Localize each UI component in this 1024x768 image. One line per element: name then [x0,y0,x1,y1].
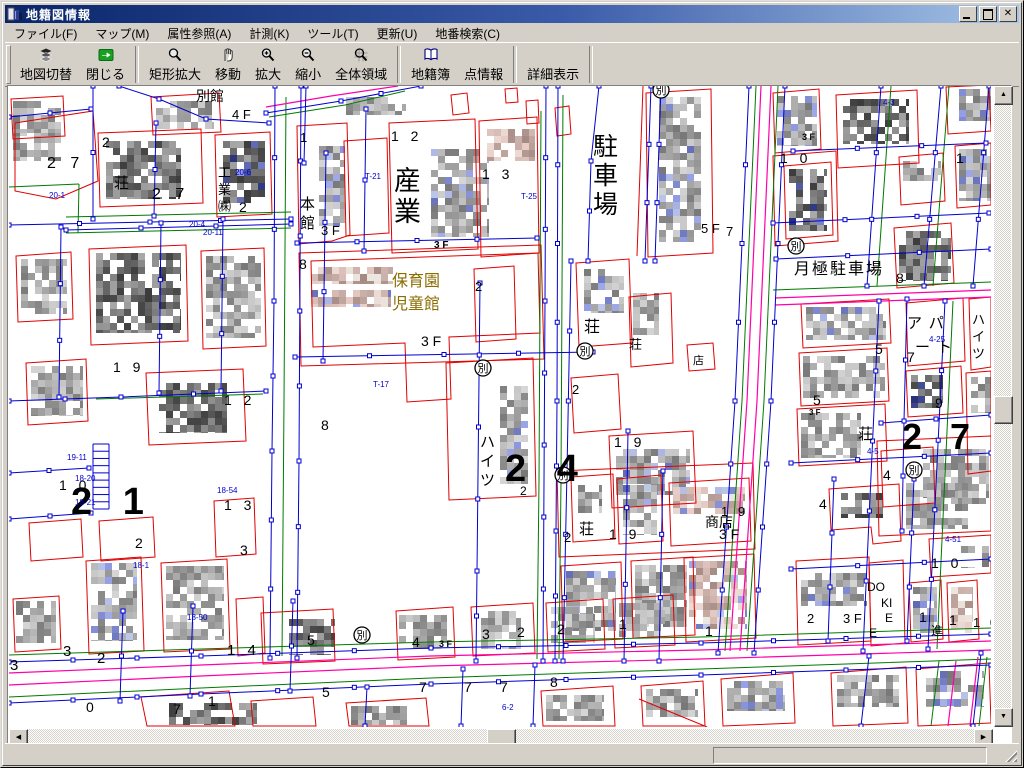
vertex-marker [879,421,883,425]
vertex-marker [752,651,756,655]
vertex-marker [907,585,911,589]
map-label: 荘 [579,521,594,538]
map-label: 別館 [196,88,224,104]
vertex-marker [989,413,991,417]
map-label: 3 F [802,132,816,142]
tool-button-0-1[interactable]: 閉じる [79,43,132,86]
tool-button-label: 地籍簿 [411,64,450,83]
magnifier-minus-icon [300,46,316,64]
tool-button-label: 移動 [215,64,241,83]
vertex-marker [826,639,830,643]
vertex-marker [915,214,919,218]
map-label: T-21 [365,172,382,181]
vertex-marker [776,242,780,246]
vertex-marker [364,107,368,111]
vertex-marker [475,569,479,573]
map-label: 1 0 [931,555,962,571]
map-label: 2 7 [152,186,189,203]
tool-button-label: 拡大 [255,64,281,83]
vertex-marker [220,274,224,278]
app-icon [7,6,23,22]
map-label: 5 [307,632,315,648]
vertex-marker [59,225,63,229]
vertex-marker [747,86,751,88]
vertex-marker [720,588,724,592]
vertex-marker [769,399,773,403]
map-label: 2 4 [505,448,588,490]
map-label: 6-2 [502,703,514,712]
vertex-marker [153,168,157,172]
vertex-marker [324,151,328,155]
resize-grip[interactable] [1004,749,1017,762]
map-label: 荘 [584,318,600,336]
map-label: 18-20 [75,474,96,483]
tool-button-label: 地図切替 [20,64,72,83]
map-label: 7 [500,679,508,695]
vertex-marker [971,284,975,288]
map-label: 1 2 [224,392,255,408]
map-label: 7 [464,679,472,695]
vertex-marker [9,517,11,521]
circled-betsu-char: 別 [580,345,591,358]
vertex-marker [900,529,904,533]
vertical-scrollbar[interactable]: ▲ ▼ [994,86,1011,727]
map-label: 1 [619,616,627,632]
vertex-marker [729,462,733,466]
vertex-marker [121,609,125,613]
tool-button-label: 点情報 [464,64,503,83]
vertex-marker [632,675,636,679]
maximize-icon [983,9,993,20]
tool-button-3-0[interactable]: 詳細表示 [520,43,586,86]
vertex-marker [533,663,537,667]
vertex-marker [622,659,626,663]
vertex-marker [566,399,570,403]
map-label: 8 [321,417,329,433]
vertex-marker [158,334,162,338]
map-label: 駐車場 [593,133,618,219]
vertex-marker [901,474,905,478]
vertex-marker [541,587,545,591]
vertex-marker [653,259,657,263]
vertex-marker [632,642,636,646]
map-label: 2 [520,484,527,498]
cadastral-line [304,86,306,163]
toolbar-grip [6,45,11,84]
vertex-marker [191,604,195,608]
vertex-marker [874,369,878,373]
map-label: ハイツ [972,312,985,361]
vertex-marker [556,163,560,167]
map-label: 5 F [701,221,720,236]
map-label: 1 4 [227,642,260,659]
vertex-marker [148,220,152,224]
vertex-marker [442,353,446,357]
vertex-marker [272,299,276,303]
vertex-marker [879,86,883,88]
map-label: 8 [299,256,307,272]
vertex-marker [844,668,848,672]
road-center-line [740,86,771,651]
map-label: 8 [550,674,558,690]
vertex-marker [220,332,224,336]
minimize-button[interactable] [959,6,977,22]
close-icon: ✕ [1004,8,1012,19]
map-label: 1 [956,150,964,166]
vertex-marker [989,451,991,455]
cadastral-line [461,669,463,726]
vertex-marker [461,667,465,671]
vertex-marker [859,724,863,727]
vertex-marker [297,384,301,388]
vertex-marker [555,399,559,403]
vertex-marker [774,257,778,261]
vertex-marker [564,644,568,648]
map-label: 5 [322,684,330,700]
map-label: 工業㈱ [218,165,231,214]
vertex-marker [655,201,659,205]
vertex-marker [877,299,881,303]
vertex-marker [843,218,847,222]
vertex-marker [475,237,479,241]
map-label: KI [881,596,892,610]
vertex-marker [586,259,590,263]
vertex-marker [846,254,850,258]
vertex-marker [929,577,933,581]
road-center-line [775,290,991,298]
map-label: 3 [482,626,490,642]
vertex-marker [543,371,547,375]
vertex-marker [71,698,75,702]
tool-button-1-2[interactable]: 拡大 [248,43,288,86]
vertex-marker [544,156,548,160]
vertex-marker [844,637,848,641]
map-label: 18-21 [75,498,96,507]
map-canvas[interactable]: 別別別別別別別別館4 F2 72荘2 7工業㈱220-620-120-420-1… [9,86,991,727]
vertex-marker [429,646,433,650]
vertex-marker [855,146,859,150]
vertex-marker [273,86,277,88]
map-label: 2 [807,611,814,626]
vertex-marker [119,395,123,399]
vertex-marker [771,221,775,225]
vertex-marker [322,290,326,294]
cadastral-line [776,249,991,259]
circled-betsu-char: 別 [656,86,667,97]
tool-button-1-4[interactable]: 全体領域 [328,43,394,86]
vertex-marker [199,654,203,658]
vertex-marker [268,656,272,660]
vertex-marker [554,594,558,598]
vertex-marker [554,529,558,533]
vertex-marker [661,469,665,473]
map-label: 8 [896,270,904,286]
vertex-marker [48,111,52,115]
vertex-marker [971,724,975,727]
vertex-marker [772,639,776,643]
vertex-marker [699,673,703,677]
vertex-marker [920,144,924,148]
map-label: 進 [931,624,943,638]
vertex-marker [273,156,277,160]
vertex-marker [553,659,557,663]
tool-button-0-0[interactable]: 地図切替 [13,43,79,86]
map-viewport: 別別別別別別別別館4 F2 72荘2 7工業㈱220-620-120-420-1… [7,85,1012,747]
vertex-marker [368,354,372,358]
vertex-marker [497,645,501,649]
map-label: 3 [63,643,71,660]
vertex-marker [219,389,223,393]
road-center-line [775,297,991,305]
vertex-marker [355,240,359,244]
vertex-marker [856,564,860,568]
map-label: 5 [813,392,821,408]
vertex-marker [297,459,301,463]
menu-item-1[interactable]: マップ(M) [86,24,158,43]
vertex-marker [773,320,777,324]
building-outline [451,93,469,115]
vertex-marker [272,227,276,231]
vertex-marker [91,151,95,155]
vertex-marker [917,250,921,254]
cadastral-line [828,479,834,641]
vertex-marker [989,247,991,251]
vertex-marker [135,695,139,699]
map-label: DO [867,580,885,594]
map-label: 0 [86,699,94,715]
vertex-marker [415,239,419,243]
map-label: 3 F [434,240,448,251]
menu-item-5[interactable]: 更新(U) [368,24,427,43]
magnifier-icon [167,46,183,64]
vertex-marker [542,515,546,519]
vertex-marker [922,284,926,288]
vertex-marker [379,92,383,96]
road-edge-line [282,97,286,656]
map-label: 5 [875,341,883,357]
vertex-marker [87,466,91,470]
blurred-text-layer [13,89,991,725]
vertex-marker [517,351,521,355]
vertex-marker [299,86,303,88]
vertex-marker [459,724,463,727]
vertex-marker [352,649,356,653]
circled-betsu-char: 別 [357,629,368,642]
scroll-up-button[interactable]: ▲ [994,86,1013,105]
vertex-marker [564,678,568,682]
menu-item-2[interactable]: 属性参照(A) [158,24,240,43]
vertex-marker [271,374,275,378]
vertex-marker [289,222,293,226]
vertex-marker [989,663,991,667]
book-icon [423,46,439,64]
menu-item-0[interactable]: ファイル(F) [5,24,86,43]
vertex-marker [626,429,630,433]
vertex-marker [157,391,161,395]
map-label: E [869,626,877,640]
road-edge-line [9,184,79,187]
building-outline [251,697,316,726]
circled-betsu-char: 別 [478,362,489,375]
building-outline [29,519,83,561]
vertex-marker [352,685,356,689]
vertex-marker [531,724,535,727]
vertex-marker [660,532,664,536]
map-label: 7 [419,679,427,695]
close-button[interactable]: ✕ [999,6,1017,22]
vertex-marker [989,557,991,561]
vertex-marker [419,86,423,88]
map-label: 4-5 [867,447,879,456]
vertex-marker [943,299,947,303]
tool-button-2-0[interactable]: 地籍簿 [404,43,457,86]
map-label: 9 [935,395,943,411]
building-outline [99,517,155,561]
vertex-marker [269,518,273,522]
map-label: 本館 [300,196,315,232]
vertex-marker [64,228,68,232]
vertex-marker [597,86,601,88]
map-label: 20-11 [203,228,223,237]
vertex-marker [569,259,573,263]
map-label: 2 [97,650,105,667]
building-outline [344,138,389,236]
vertex-marker [188,694,192,698]
vertex-marker [933,151,937,155]
map-label: 2 [239,199,247,215]
vertex-marker [789,567,793,571]
vertex-marker [765,462,769,466]
vertex-marker [267,121,271,125]
vertex-marker [477,425,481,429]
menu-item-3[interactable]: 計測(K) [240,24,298,43]
vertex-marker [477,353,481,357]
vertex-marker [625,506,629,510]
vertex-marker [917,666,921,670]
vertex-marker [568,329,572,333]
vertex-marker [535,236,539,240]
toolbar-separator [513,46,517,83]
map-label: 2 [475,279,482,294]
map-label: 20-6 [235,168,252,177]
vertex-marker [291,599,295,603]
hand-icon [220,46,236,64]
tool-button-label: 詳細表示 [527,64,579,83]
vertex-marker [289,217,293,221]
vertical-scroll-thumb[interactable] [994,396,1013,424]
tool-button-1-3[interactable]: 縮小 [288,43,328,86]
vertex-marker [9,223,11,227]
vertex-marker [363,724,367,727]
map-label: 2 [564,530,571,545]
map-label: 4 [819,496,827,512]
map-label: 1 [705,623,713,639]
vertex-marker [204,117,208,121]
vertex-marker [296,590,300,594]
map-label: 18-54 [217,486,238,495]
vertex-marker [828,585,832,589]
vertex-marker [362,249,366,253]
vertex-marker [867,654,871,658]
cadastral-line [555,86,558,661]
map-label: 1 [208,693,216,709]
layers-icon [38,46,54,64]
vertex-marker [48,514,52,518]
vertex-marker [9,115,11,119]
menu-item-6[interactable]: 地番検索(C) [426,24,509,43]
vertex-marker [476,497,480,501]
vertex-marker [264,111,268,115]
vertex-marker [304,86,308,88]
vertex-marker [556,86,560,88]
toolbar-separator [135,46,139,83]
vertex-marker [556,242,560,246]
vertex-marker [940,369,944,373]
magnifier-plus-icon [260,46,276,64]
map-label: 4 F [232,107,251,122]
map-label: 3 F [809,408,821,417]
vertex-marker [78,222,82,226]
map-label: 3 F [439,639,453,649]
menu-bar: ファイル(F)マップ(M)属性参照(A)計測(K)ツール(T)更新(U)地番検索… [5,24,1019,42]
vertex-marker [657,142,661,146]
tool-button-1-1[interactable]: 移動 [208,43,248,86]
vertex-marker [989,632,991,636]
vertex-marker [270,449,274,453]
vertex-marker [699,641,703,645]
map-label: 20-1 [49,191,66,200]
vertex-marker [9,471,11,475]
vertex-marker [772,671,776,675]
toolbar: 地図切替閉じる矩形拡大移動拡大縮小全体領域地籍簿点情報詳細表示 [5,42,1019,87]
vertex-marker [928,217,932,221]
maximize-button[interactable] [979,6,997,22]
vertex-marker [58,282,62,286]
vertex-marker [475,614,479,618]
map-label: 4 [883,467,891,483]
scroll-down-button[interactable]: ▼ [994,708,1013,727]
vertex-marker [91,217,95,221]
map-label: 19-11 [67,453,87,462]
vertex-marker [870,217,874,221]
vertex-marker [737,320,741,324]
vertex-marker [544,86,548,88]
vertex-marker [293,355,297,359]
vertex-marker [555,320,559,324]
tool-button-1-0[interactable]: 矩形拡大 [142,43,208,86]
vertex-marker [91,86,95,88]
vertex-marker [276,689,280,693]
map-label: 7 [907,349,915,365]
vertex-marker [856,458,860,462]
map-label: 1 9 [609,526,640,542]
menu-item-4[interactable]: ツール(T) [298,24,367,43]
vertex-marker [139,226,143,230]
map-label: 1 0 [780,150,811,166]
vertex-marker [874,151,878,155]
vertex-marker [339,99,343,103]
vertex-marker [302,161,306,165]
vertex-marker [158,278,162,282]
circled-betsu-char: 別 [791,240,802,253]
vertex-marker [47,469,51,473]
status-panel [713,747,987,764]
map-label: 2 [557,621,565,637]
tool-button-2-1[interactable]: 点情報 [457,43,510,86]
status-bar [5,743,1019,764]
map-label: 1 0 [973,615,991,630]
map-label: 2 [102,134,110,150]
